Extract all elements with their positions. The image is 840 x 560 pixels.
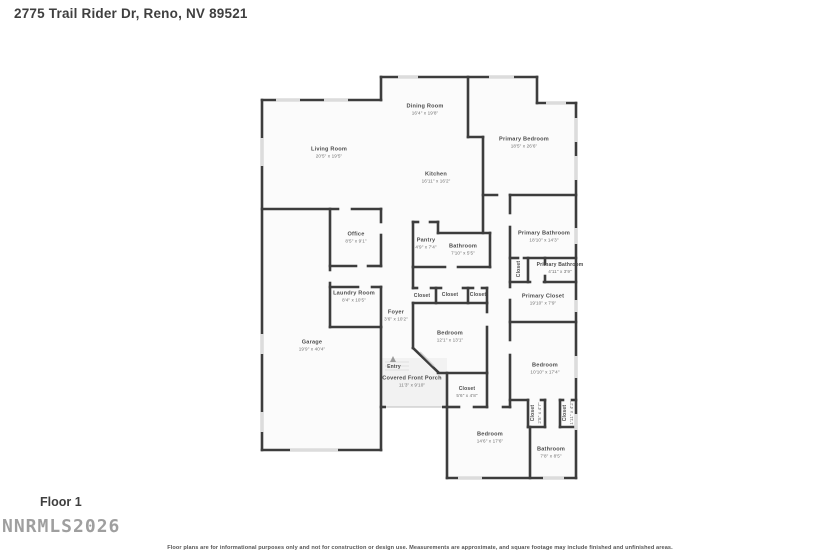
floor-plan: Living Room20'5" x 19'5" Dining Room16'4… [0,0,840,560]
mls-watermark: NNRMLS2026 [2,516,120,537]
floor-number-label: Floor 1 [40,495,82,509]
disclaimer-text: Floor plans are for informational purpos… [0,545,840,551]
floor-plan-drawing [0,0,840,560]
